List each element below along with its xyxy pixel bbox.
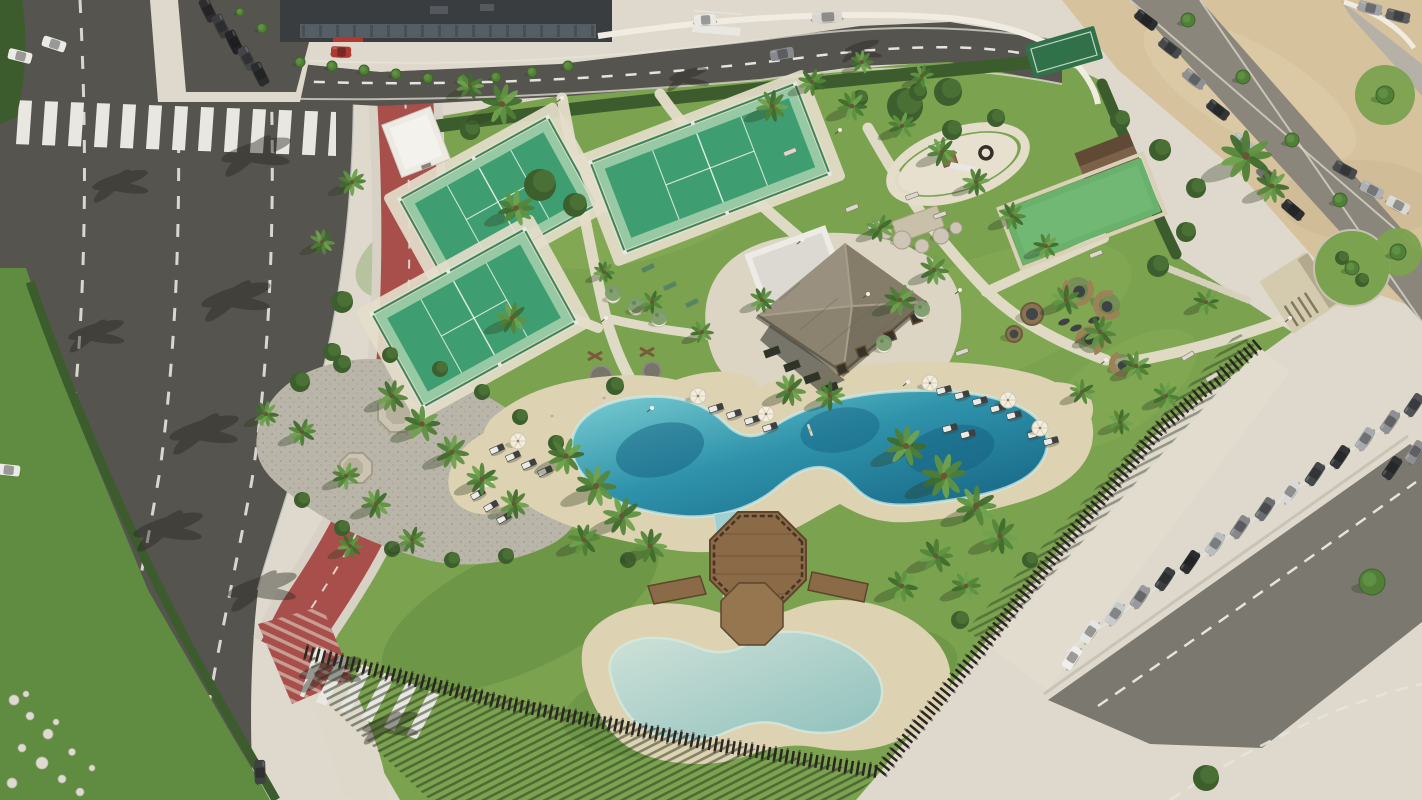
shrub (474, 384, 490, 400)
shrub (444, 552, 460, 568)
rock (69, 749, 76, 756)
rock (7, 778, 17, 788)
shrub (382, 347, 398, 363)
rock (58, 775, 66, 783)
shrub (606, 377, 624, 395)
red-awning (333, 37, 363, 42)
shrub (294, 492, 310, 508)
rock (89, 765, 95, 771)
glass-facade (300, 24, 596, 38)
shrub (333, 355, 351, 373)
rock (18, 744, 26, 752)
shrub (563, 193, 587, 217)
roof-unit (430, 6, 448, 14)
rock (23, 691, 29, 697)
rock (36, 757, 48, 769)
rock (76, 788, 84, 796)
shrub (1176, 222, 1196, 242)
shrub (934, 78, 962, 106)
car (330, 46, 352, 58)
shrub (1022, 552, 1038, 568)
aerial-scene (0, 0, 1422, 800)
shrub (1193, 765, 1219, 791)
shrub (432, 361, 448, 377)
patio-table (836, 363, 849, 376)
shrub (1355, 273, 1369, 287)
shrub (1110, 110, 1130, 130)
shrub (512, 409, 528, 425)
shrub (524, 169, 556, 201)
shrub (498, 548, 514, 564)
shrub (942, 120, 962, 140)
shrub (334, 520, 350, 536)
shrub (951, 611, 969, 629)
shrub (331, 291, 353, 313)
deck-lower-octagon (721, 583, 783, 645)
car (253, 759, 266, 786)
patio-table (856, 346, 869, 359)
roof-unit (480, 4, 494, 11)
shrub (1147, 255, 1169, 277)
rock (43, 729, 53, 739)
shrub (987, 109, 1005, 127)
rock (9, 695, 19, 705)
rock (26, 712, 34, 720)
shrub (1149, 139, 1171, 161)
rock (53, 719, 59, 725)
shrub (290, 372, 310, 392)
aerial-resort-park-render (0, 0, 1422, 800)
